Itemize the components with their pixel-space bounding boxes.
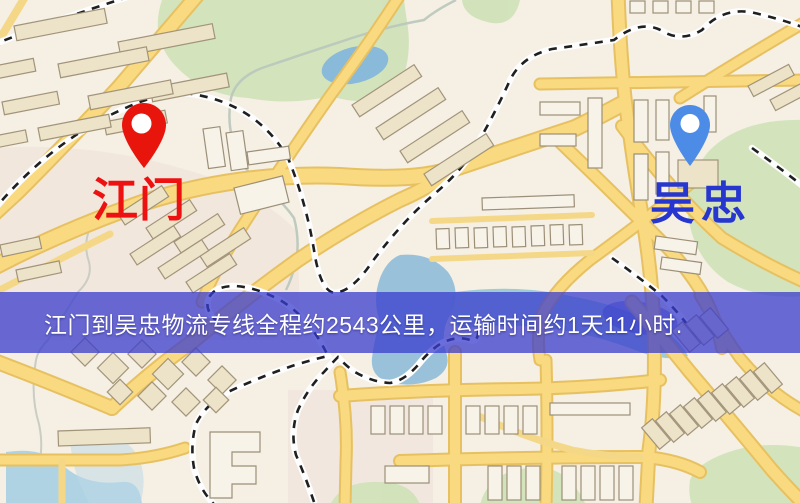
origin-pin-icon[interactable]: [119, 100, 169, 170]
destination-pin-icon[interactable]: [667, 102, 713, 168]
map-graphic: [0, 0, 800, 503]
origin-city-label: 江门: [92, 177, 186, 223]
route-map[interactable]: 江门 吴忠 江门到吴忠物流专线全程约2543公里，运输时间约1天11小时.: [0, 0, 800, 503]
route-info-text: 江门到吴忠物流专线全程约2543公里，运输时间约1天11小时.: [44, 306, 683, 340]
route-info-banner: 江门到吴忠物流专线全程约2543公里，运输时间约1天11小时.: [0, 292, 800, 353]
destination-city-label: 吴忠: [650, 181, 752, 226]
